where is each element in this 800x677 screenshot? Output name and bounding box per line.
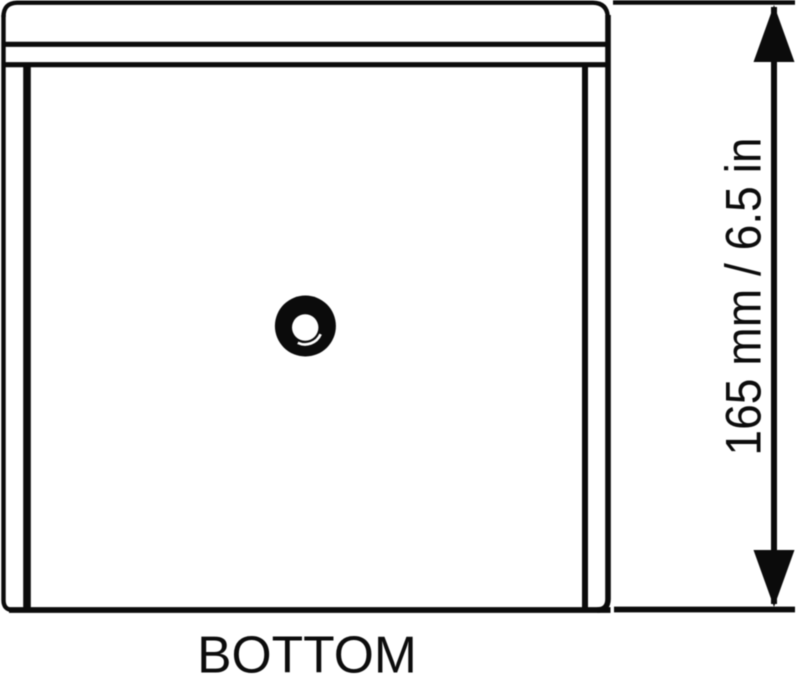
svg-text:165 mm / 6.5 in: 165 mm / 6.5 in (716, 137, 772, 455)
svg-text:BOTTOM: BOTTOM (197, 625, 417, 677)
